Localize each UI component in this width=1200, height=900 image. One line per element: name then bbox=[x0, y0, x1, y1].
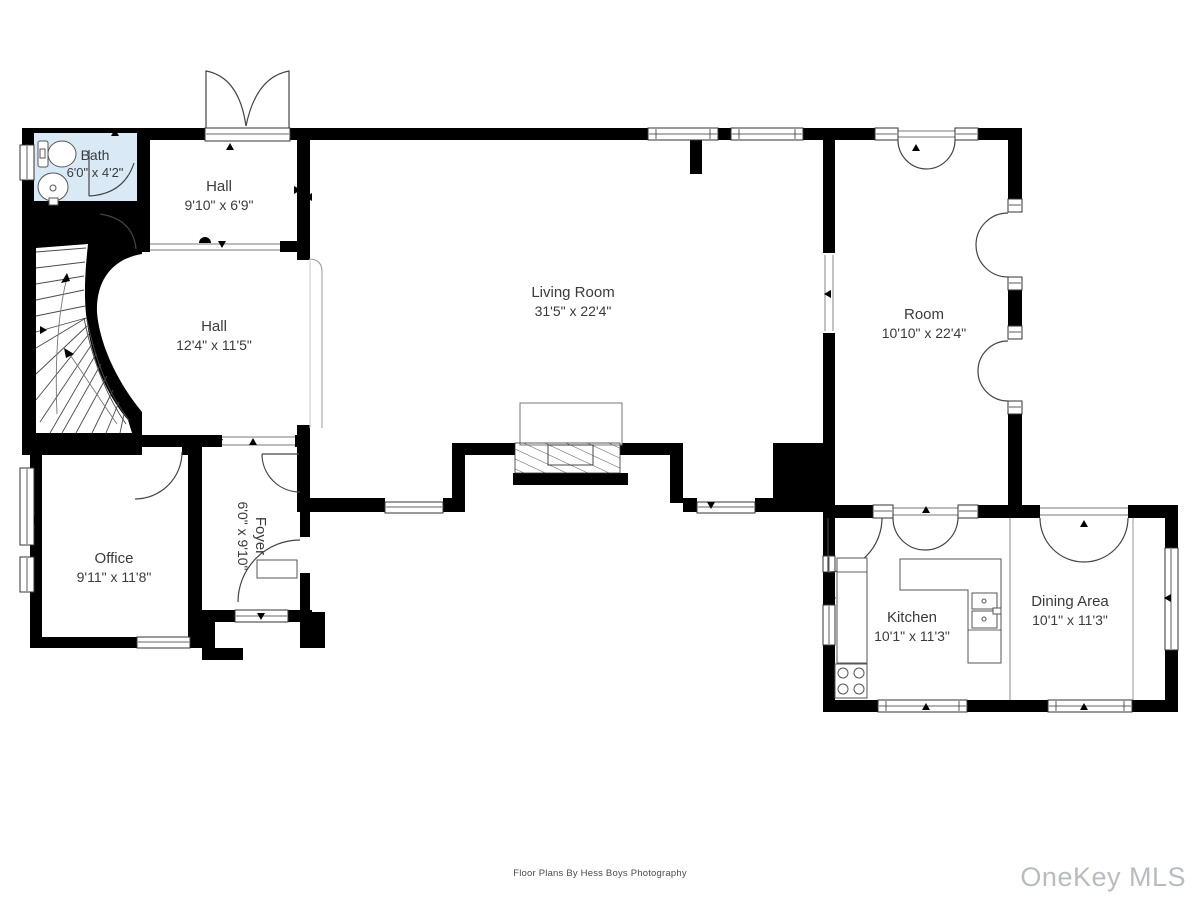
room-dims: 10'10" x 22'4" bbox=[882, 325, 967, 341]
floor-plan: Bath 6'0" x 4'2" Hall 9'10" x 6'9" Hall … bbox=[0, 0, 1200, 900]
room-double-door bbox=[898, 140, 955, 169]
dining-label: Dining Area bbox=[1031, 593, 1109, 610]
window bbox=[385, 502, 443, 513]
foyer-dims: 6'0" x 9'10" bbox=[235, 502, 251, 571]
window bbox=[873, 505, 893, 518]
door-jamb bbox=[1008, 277, 1022, 290]
floor-plan-page: Bath 6'0" x 4'2" Hall 9'10" x 6'9" Hall … bbox=[0, 0, 1200, 900]
dining-dims: 10'1" x 11'3" bbox=[1032, 612, 1108, 628]
window bbox=[878, 700, 967, 712]
window bbox=[1048, 700, 1132, 712]
living-room-dims: 31'5" x 22'4" bbox=[535, 303, 612, 319]
bath-dims: 6'0" x 4'2" bbox=[67, 165, 124, 180]
hall-lower-label: Hall bbox=[201, 318, 227, 335]
hall-upper-dims: 9'10" x 6'9" bbox=[185, 197, 254, 213]
kitchen-label: Kitchen bbox=[887, 609, 937, 626]
column-notch bbox=[309, 259, 322, 428]
office-label: Office bbox=[95, 550, 134, 567]
toilet-icon bbox=[38, 141, 76, 167]
window bbox=[823, 556, 835, 572]
window bbox=[20, 468, 34, 545]
watermark-text: OneKey MLS bbox=[1020, 862, 1186, 893]
kitchen-dims: 10'1" x 11'3" bbox=[874, 628, 950, 644]
office-dims: 9'11" x 11'8" bbox=[77, 569, 152, 585]
window bbox=[958, 505, 978, 518]
hall-lower-dims: 12'4" x 11'5" bbox=[176, 337, 252, 353]
window bbox=[648, 128, 718, 140]
living-room-label: Living Room bbox=[531, 284, 614, 301]
threshold bbox=[205, 128, 290, 141]
window bbox=[875, 128, 898, 140]
window bbox=[20, 557, 34, 592]
window bbox=[731, 128, 803, 140]
window bbox=[20, 145, 34, 180]
sink-icon bbox=[972, 593, 1001, 628]
foyer-label: Foyer bbox=[252, 517, 269, 555]
counter bbox=[837, 558, 867, 663]
door-jamb bbox=[1008, 401, 1022, 414]
window bbox=[697, 502, 755, 513]
foyer-upper-door bbox=[262, 454, 300, 492]
room-label: Room bbox=[904, 306, 944, 323]
bath-label: Bath bbox=[81, 147, 110, 163]
hall-upper-label: Hall bbox=[206, 178, 232, 195]
office-door bbox=[135, 452, 182, 499]
room-french-door-upper bbox=[976, 213, 1008, 277]
kitchen-double-door bbox=[893, 518, 958, 550]
room-french-door-lower bbox=[978, 341, 1008, 401]
window bbox=[823, 605, 835, 645]
window bbox=[955, 128, 978, 140]
entry-double-door bbox=[206, 71, 289, 128]
stove-icon bbox=[835, 664, 867, 698]
door-jamb bbox=[1008, 326, 1022, 339]
window bbox=[137, 637, 190, 648]
door-jamb bbox=[1008, 199, 1022, 212]
fireplace bbox=[515, 403, 622, 473]
